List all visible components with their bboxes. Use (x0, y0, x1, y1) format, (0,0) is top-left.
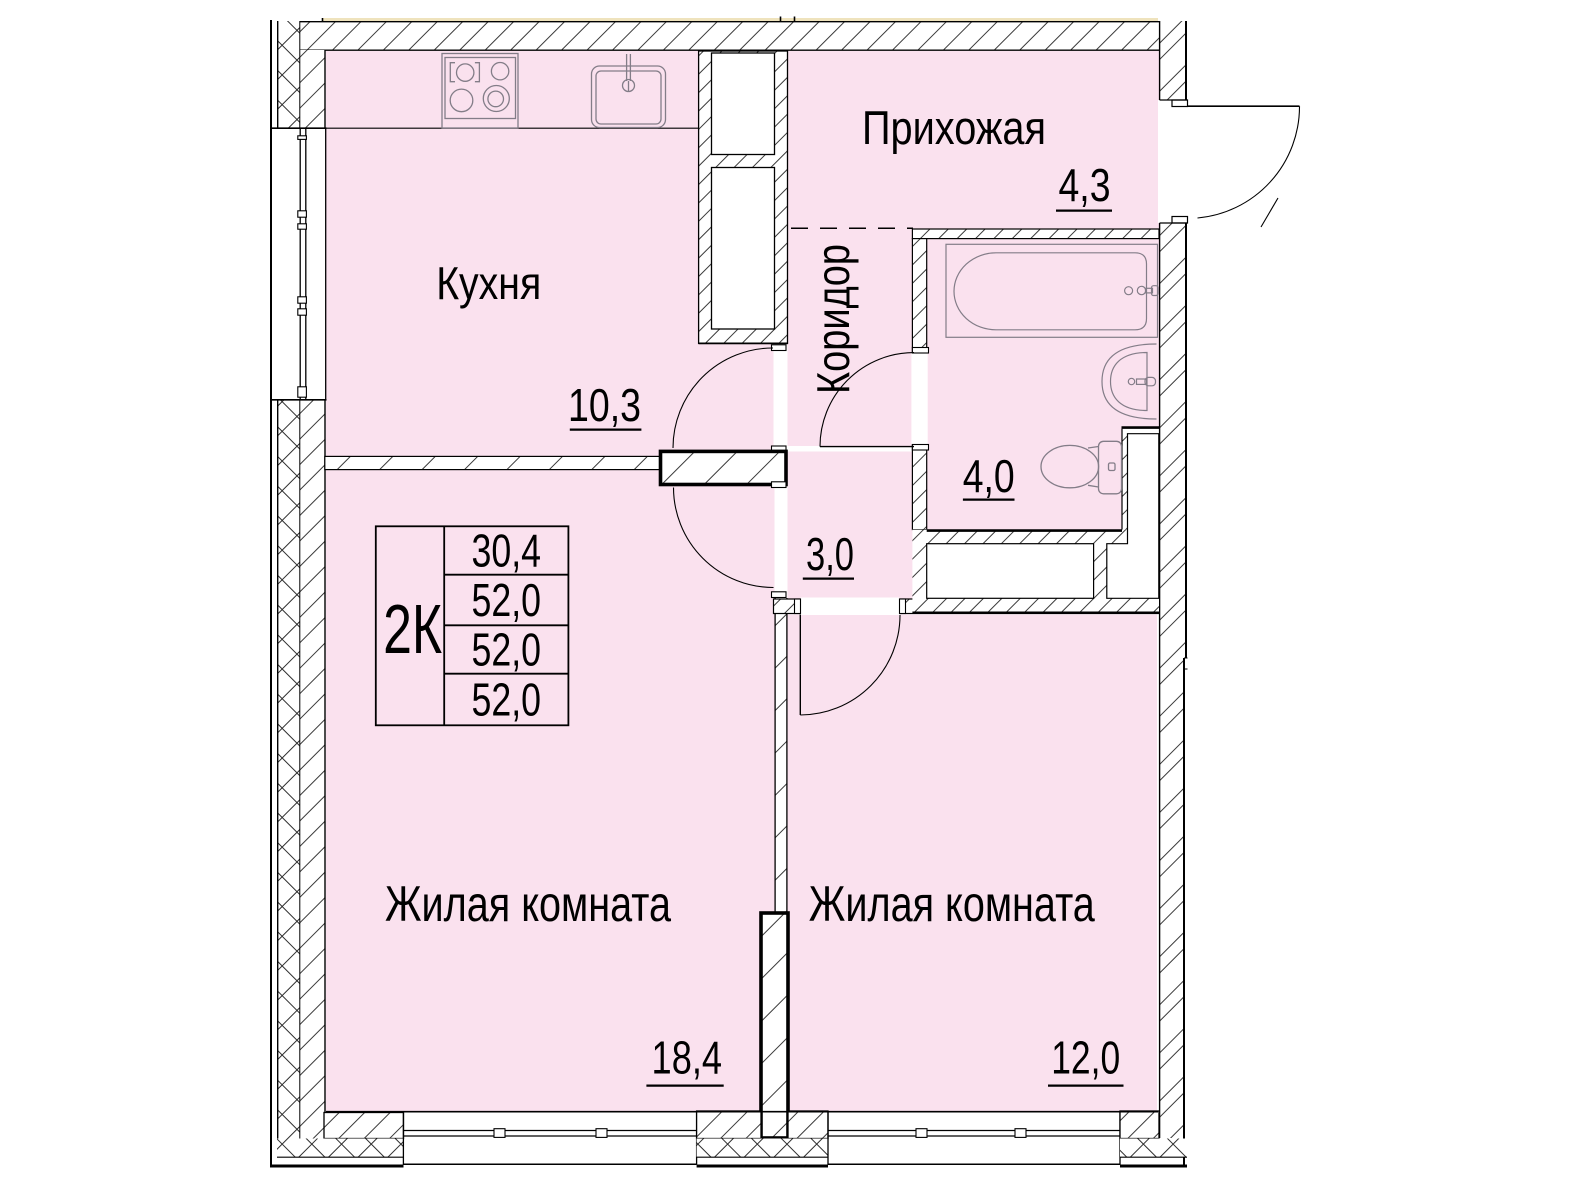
svg-text:12,0: 12,0 (1051, 1032, 1120, 1084)
svg-text:52,0: 52,0 (472, 674, 542, 726)
svg-text:4,0: 4,0 (963, 450, 1015, 502)
svg-text:Кухня: Кухня (436, 257, 541, 309)
svg-text:Жилая комната: Жилая комната (385, 876, 671, 932)
svg-text:52,0: 52,0 (472, 574, 542, 626)
svg-text:10,3: 10,3 (568, 379, 641, 431)
svg-text:4,3: 4,3 (1059, 159, 1111, 211)
svg-text:Коридор: Коридор (807, 244, 859, 394)
svg-text:Жилая комната: Жилая комната (809, 876, 1095, 932)
svg-text:3,0: 3,0 (806, 528, 854, 580)
svg-text:52,0: 52,0 (472, 624, 542, 676)
svg-text:30,4: 30,4 (472, 525, 542, 577)
svg-text:2К: 2К (383, 590, 442, 668)
svg-text:18,4: 18,4 (652, 1032, 723, 1084)
svg-text:Прихожая: Прихожая (862, 101, 1046, 154)
